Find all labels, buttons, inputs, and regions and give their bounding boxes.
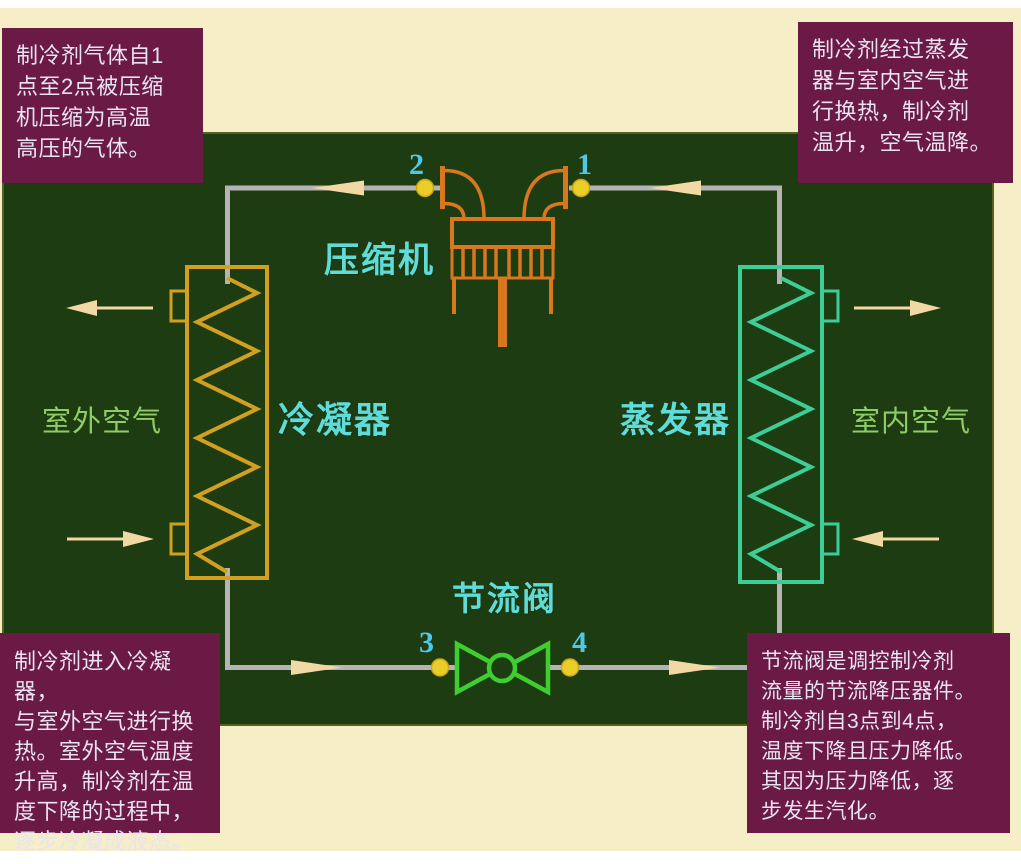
evaporator-label: 蒸发器 — [620, 392, 731, 443]
state-point-1-dot — [573, 180, 590, 197]
state-point-3-dot — [432, 659, 449, 676]
throttle-valve-label: 节流阀 — [452, 572, 557, 620]
compressor-label: 压缩机 — [324, 232, 435, 283]
annotation-compression-1-to-2: 制冷剂气体自1 点至2点被压缩 机压缩为高温 高压的气体。 — [2, 28, 203, 183]
condenser-label: 冷凝器 — [278, 391, 392, 443]
outdoor-air-label: 室外空气 — [42, 398, 162, 440]
indoor-air-label: 室内空气 — [851, 398, 971, 440]
state-point-1-number: 1 — [577, 148, 592, 182]
state-point-4-dot — [562, 659, 579, 676]
refrigeration-cycle-screen: 压缩机 冷凝器 蒸发器 节流阀 室外空气 室内空气 1 2 3 4 制冷剂气体自… — [0, 0, 1021, 864]
state-point-2-number: 2 — [409, 148, 424, 182]
annotation-evaporator-heat-exchange: 制冷剂经过蒸发 器与室内空气进 行换热，制冷剂 温升，空气温降。 — [798, 22, 1013, 183]
annotation-throttle-valve-3-to-4: 节流阀是调控制冷剂 流量的节流降压器件。 制冷剂自3点到4点， 温度下降且压力降… — [747, 633, 1010, 833]
state-point-3-number: 3 — [419, 626, 434, 660]
annotation-condenser-process: 制冷剂进入冷凝器， 与室外空气进行换 热。室外空气温度 升高，制冷剂在温 度下降… — [0, 633, 220, 833]
state-point-2-dot — [417, 180, 434, 197]
state-point-4-number: 4 — [572, 626, 587, 660]
